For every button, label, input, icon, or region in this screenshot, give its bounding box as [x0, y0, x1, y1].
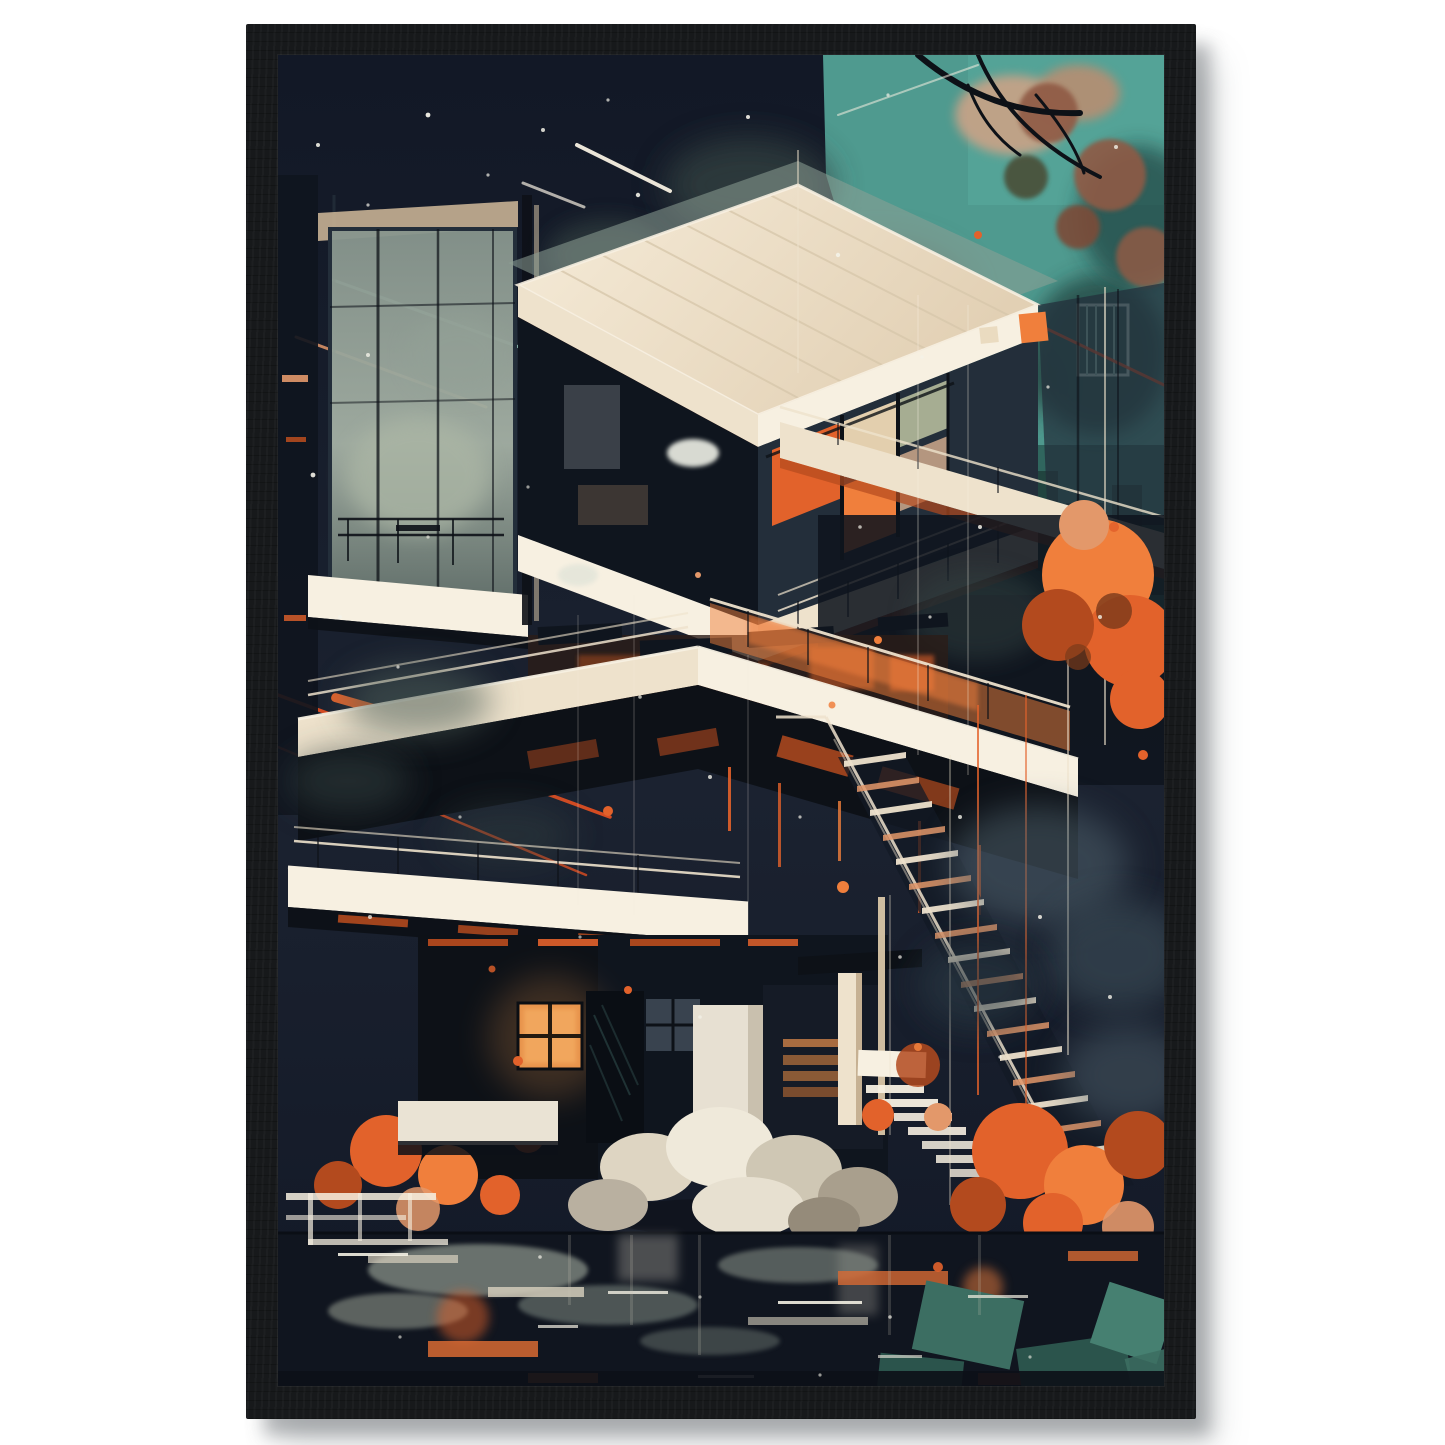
artwork-illustration — [278, 55, 1164, 1386]
foliage-bottom-right — [950, 1103, 1164, 1253]
wall-background — [0, 0, 1445, 1445]
poster-artwork — [278, 55, 1164, 1386]
poster-frame — [246, 24, 1196, 1419]
framed-poster[interactable] — [246, 24, 1196, 1419]
water-reflection — [278, 1233, 1164, 1386]
left-glass-tower — [308, 195, 539, 649]
